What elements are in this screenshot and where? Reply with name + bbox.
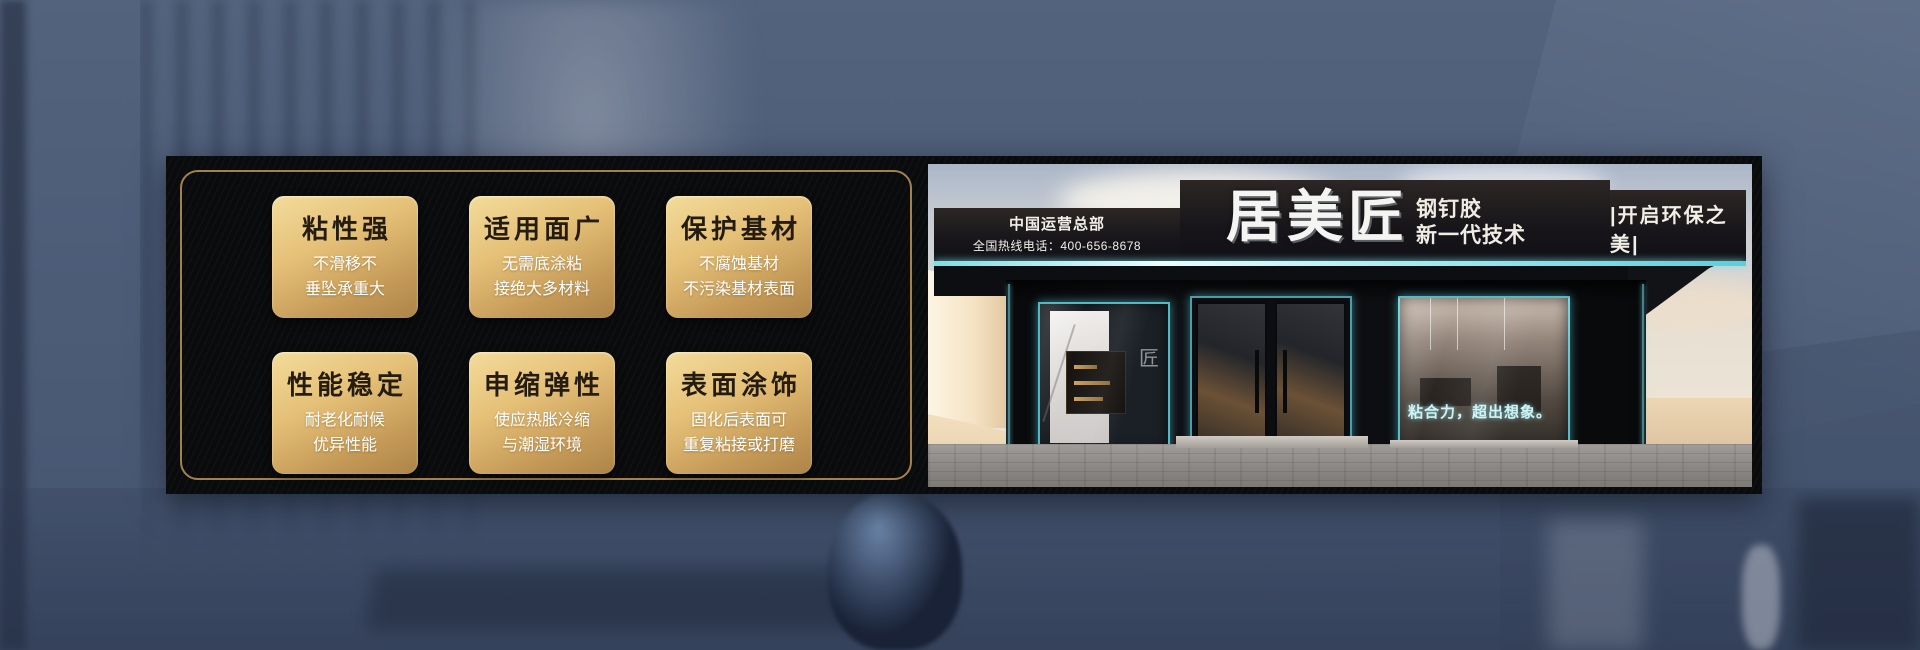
display-window-left: 匠 — [1038, 302, 1170, 452]
window-step — [1390, 440, 1578, 448]
feature-card: 申缩弹性 使应热胀冷缩 与潮湿环境 — [469, 352, 615, 474]
brand-name: 居美匠 — [1226, 189, 1409, 245]
feature-card-line: 垂坠承重大 — [305, 279, 385, 302]
feature-card: 适用面广 无需底涂粘 接绝大多材料 — [469, 196, 615, 318]
door-panel-right — [1275, 302, 1346, 458]
feature-card-title: 保护基材 — [677, 209, 801, 246]
product-name: 钢钉胶 — [1416, 197, 1526, 223]
feature-card: 保护基材 不腐蚀基材 不污染基材表面 — [666, 196, 812, 318]
hq-text-block: 中国运营总部 全国热线电话：400-656-8678 — [944, 213, 1170, 254]
display-window-right: 粘合力，超出想象。 — [1398, 296, 1570, 454]
hotline-number: 全国热线电话：400-656-8678 — [944, 237, 1170, 254]
feature-card-title: 粘性强 — [298, 209, 392, 246]
feature-card-title: 申缩弹性 — [480, 365, 604, 402]
tech-tagline: 新一代技术 — [1416, 223, 1526, 249]
led-strip — [934, 261, 1746, 266]
feature-card-title: 性能稳定 — [283, 365, 407, 402]
feature-card-line: 接绝大多材料 — [494, 279, 590, 302]
stone-paving — [928, 444, 1752, 487]
feature-card-line: 优异性能 — [313, 435, 377, 458]
sand-right — [1640, 398, 1752, 448]
teal-edge-light — [1642, 284, 1644, 462]
feature-card-line: 无需底涂粘 — [502, 254, 582, 277]
eco-slogan: |开启环保之美| — [1610, 199, 1738, 257]
door-handle — [1283, 350, 1287, 414]
feature-card: 粘性强 不滑移不 垂坠承重大 — [272, 196, 418, 318]
product-text-block: 钢钉胶 新一代技术 — [1416, 197, 1526, 248]
feature-cards-grid: 粘性强 不滑移不 垂坠承重大 适用面广 无需底涂粘 接绝大多材料 保护基材 不腐… — [272, 196, 812, 474]
hq-label: 中国运营总部 — [944, 213, 1170, 234]
feature-card-line: 与潮湿环境 — [502, 435, 582, 458]
sign-right-section: |开启环保之美| — [1610, 190, 1746, 264]
paving-texture — [928, 444, 1752, 487]
feature-card-line: 耐老化耐候 — [305, 410, 385, 433]
feature-card-title: 表面涂饰 — [677, 365, 801, 402]
door-panel-left — [1196, 302, 1267, 458]
feature-card: 性能稳定 耐老化耐候 优异性能 — [272, 352, 418, 474]
sign-left-section: 中国运营总部 全国热线电话：400-656-8678 — [934, 208, 1180, 264]
feature-card-title: 适用面广 — [480, 209, 604, 246]
door-handle — [1255, 350, 1259, 414]
feature-card: 表面涂饰 固化后表面可 重复粘接或打磨 — [666, 352, 812, 474]
feature-card-line: 不滑移不 — [313, 254, 377, 277]
feature-card-line: 重复粘接或打磨 — [683, 435, 795, 458]
promo-banner: 粘性强 不滑移不 垂坠承重大 适用面广 无需底涂粘 接绝大多材料 保护基材 不腐… — [166, 156, 1762, 494]
entrance-step — [1176, 436, 1368, 448]
glass-reflection — [1040, 304, 1168, 450]
feature-card-line: 固化后表面可 — [691, 410, 787, 433]
feature-card-line: 使应热胀冷缩 — [494, 410, 590, 433]
glass-reflection — [1400, 298, 1568, 452]
feature-card-line: 不腐蚀基材 — [699, 254, 779, 277]
feature-card-line: 不污染基材表面 — [683, 279, 795, 302]
storefront-photo: 中国运营总部 全国热线电话：400-656-8678 居美匠 钢钉胶 新一代技术… — [928, 164, 1752, 487]
teal-edge-light — [1008, 284, 1010, 462]
sign-center-section: 居美匠 钢钉胶 新一代技术 — [1180, 180, 1610, 264]
